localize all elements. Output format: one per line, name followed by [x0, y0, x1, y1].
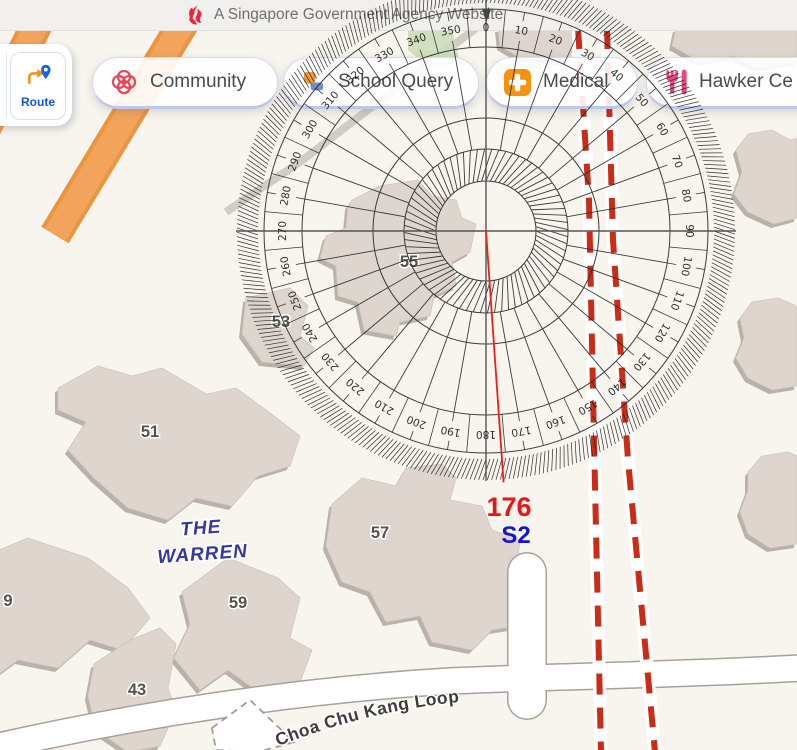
hawker-centre-label: Hawker Ce — [699, 71, 793, 93]
route-button[interactable]: Route — [10, 52, 66, 120]
building-label: 59 — [229, 594, 247, 612]
map-canvas[interactable]: Choa Chu Kang LoopTHEWARREN5553519594357 — [0, 0, 797, 750]
community-button[interactable]: Community — [92, 57, 278, 109]
building-label: 55 — [400, 253, 418, 271]
building-label: 57 — [371, 524, 389, 542]
medical-icon — [503, 68, 532, 97]
school-query-icon — [300, 69, 327, 96]
building-label: 9 — [3, 592, 12, 610]
lion-crest-icon — [186, 4, 206, 26]
building-label: 51 — [141, 423, 159, 441]
medical-button[interactable]: Medical — [486, 57, 638, 109]
hawker-centre-icon — [663, 68, 688, 96]
gov-banner-text: A Singapore Government Agency Website — [214, 6, 503, 24]
card-divider — [6, 52, 7, 118]
map-screen: Choa Chu Kang LoopTHEWARREN5553519594357… — [0, 0, 797, 750]
route-icon — [22, 63, 54, 94]
route-label: Route — [21, 95, 55, 109]
school-query-label: School Query — [338, 71, 453, 93]
community-icon — [109, 67, 139, 97]
community-label: Community — [150, 71, 246, 93]
school-query-button[interactable]: School Query — [283, 57, 479, 109]
building-label: 43 — [128, 681, 146, 699]
route-card[interactable]: Route — [0, 44, 72, 126]
gov-banner: A Singapore Government Agency Website — [0, 0, 797, 31]
hawker-centre-button[interactable]: Hawker Ce — [646, 57, 797, 109]
building-label: 53 — [272, 313, 290, 331]
medical-label: Medical — [543, 71, 608, 93]
